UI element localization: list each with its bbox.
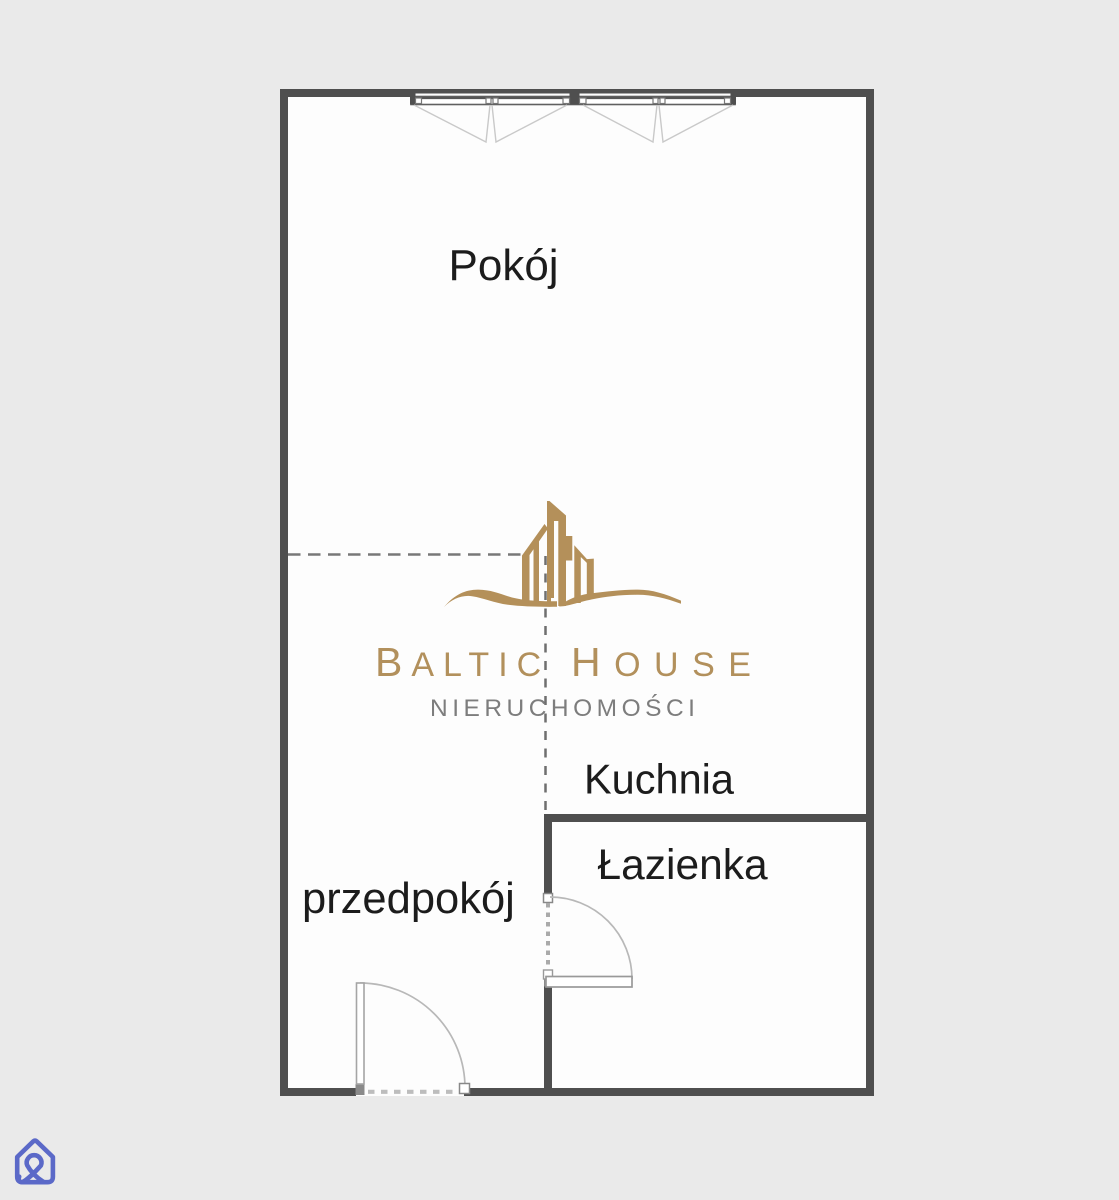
svg-text:BALTIC: BALTIC	[375, 639, 550, 685]
svg-text:Pokój: Pokój	[449, 241, 559, 290]
svg-text:HOUSE: HOUSE	[571, 639, 764, 685]
svg-text:Łazienka: Łazienka	[598, 842, 768, 889]
svg-text:NIERUCHOMOŚCI: NIERUCHOMOŚCI	[430, 694, 699, 722]
svg-text:przedpokój: przedpokój	[302, 875, 515, 923]
svg-text:Kuchnia: Kuchnia	[584, 756, 735, 803]
